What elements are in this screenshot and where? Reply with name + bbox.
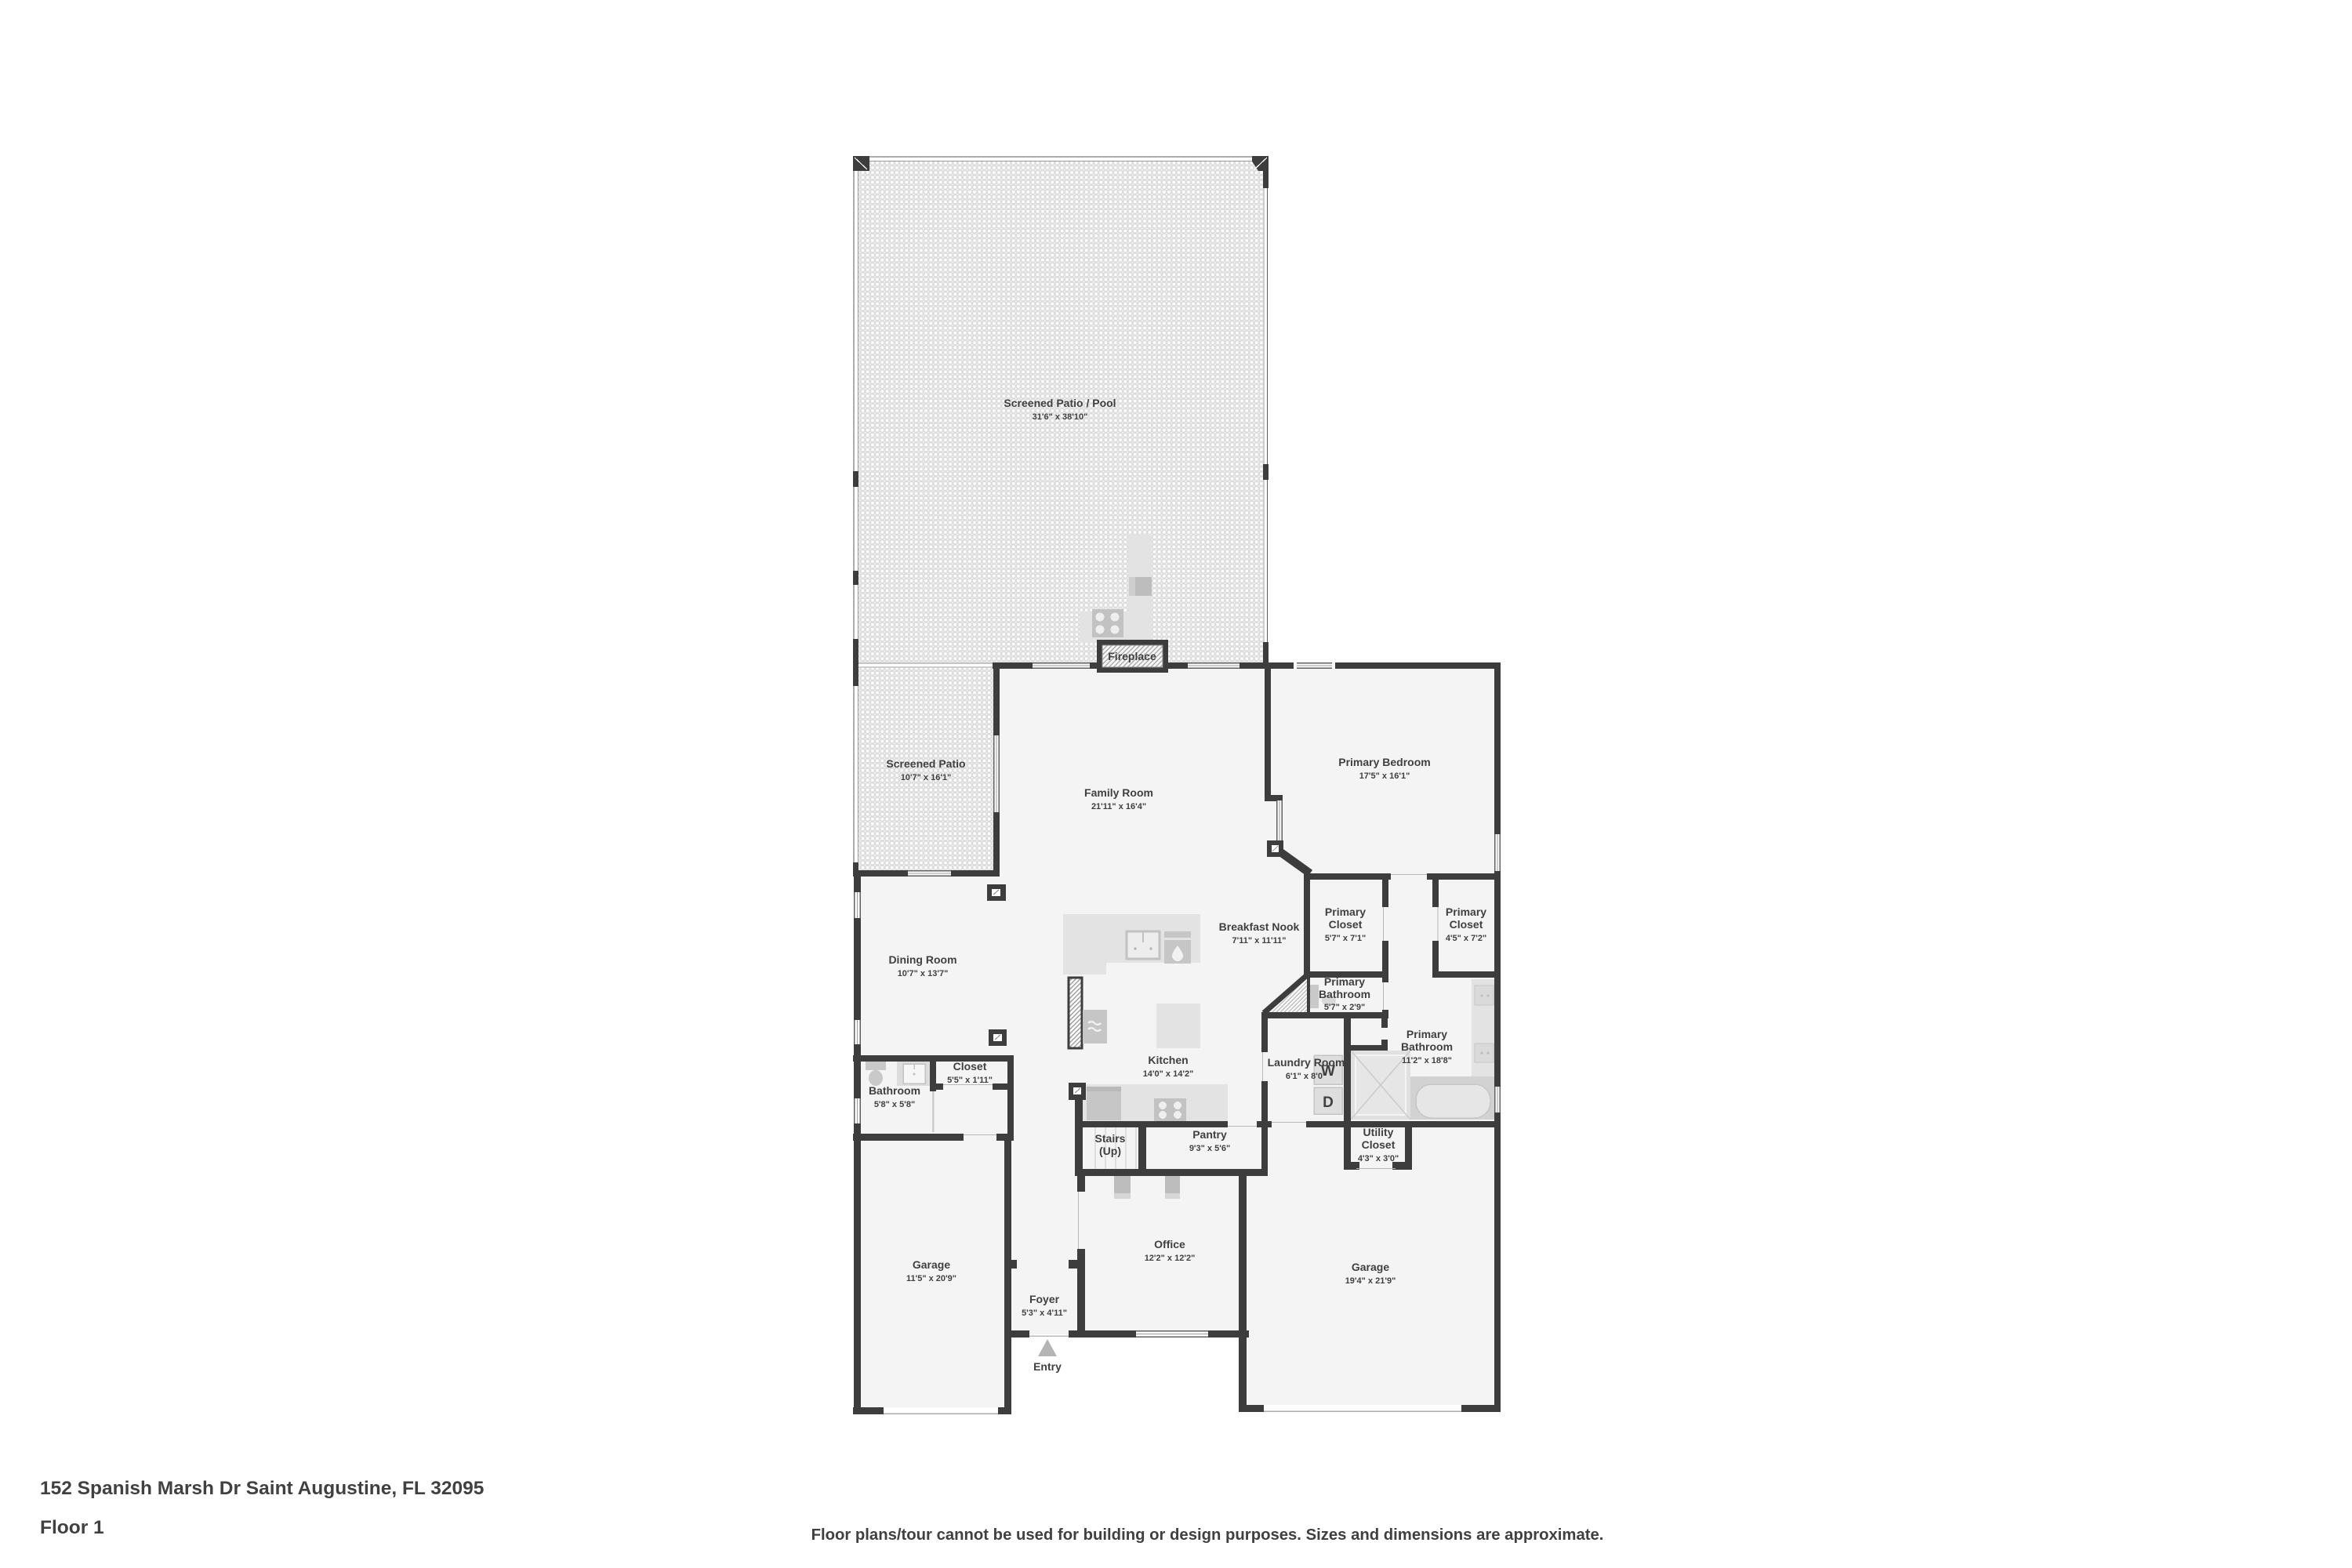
svg-text:Pantry: Pantry <box>1192 1128 1227 1141</box>
svg-text:Kitchen: Kitchen <box>1148 1054 1188 1066</box>
svg-text:Closet: Closet <box>1450 918 1483 931</box>
svg-text:Bathroom: Bathroom <box>869 1084 920 1097</box>
svg-text:12'2" x 12'2": 12'2" x 12'2" <box>1145 1254 1196 1263</box>
svg-text:Fireplace: Fireplace <box>1108 650 1156 662</box>
svg-text:152 Spanish Marsh Dr Saint Aug: 152 Spanish Marsh Dr Saint Augustine, FL… <box>40 1478 484 1499</box>
svg-text:Floor 1: Floor 1 <box>40 1517 104 1538</box>
svg-text:5'3" x 4'11": 5'3" x 4'11" <box>1022 1308 1067 1318</box>
svg-text:7'11" x 11'11": 7'11" x 11'11" <box>1232 936 1287 946</box>
svg-text:Bathroom: Bathroom <box>1319 988 1370 1000</box>
svg-text:Bathroom: Bathroom <box>1401 1040 1453 1053</box>
svg-text:5'5" x 1'11": 5'5" x 1'11" <box>947 1076 993 1085</box>
svg-text:Screened Patio / Pool: Screened Patio / Pool <box>1004 397 1116 409</box>
svg-text:Foyer: Foyer <box>1029 1293 1060 1305</box>
svg-text:5'7" x 2'9": 5'7" x 2'9" <box>1324 1003 1365 1012</box>
svg-text:Utility: Utility <box>1363 1126 1394 1138</box>
svg-text:4'3" x 3'0": 4'3" x 3'0" <box>1358 1154 1399 1163</box>
svg-text:4'5" x 7'2": 4'5" x 7'2" <box>1446 934 1486 943</box>
svg-text:5'8" x 5'8": 5'8" x 5'8" <box>874 1100 915 1109</box>
svg-text:14'0" x 14'2": 14'0" x 14'2" <box>1143 1069 1194 1079</box>
svg-text:Closet: Closet <box>953 1060 987 1073</box>
svg-text:Primary: Primary <box>1324 975 1365 988</box>
svg-text:D: D <box>1323 1094 1334 1111</box>
svg-text:11'5" x 20'9": 11'5" x 20'9" <box>906 1274 956 1283</box>
svg-text:Garage: Garage <box>913 1258 950 1271</box>
svg-text:Stairs: Stairs <box>1095 1132 1126 1145</box>
svg-text:Family Room: Family Room <box>1084 786 1153 799</box>
svg-text:10'7" x 13'7": 10'7" x 13'7" <box>898 969 949 978</box>
svg-text:11'2" x 18'8": 11'2" x 18'8" <box>1402 1056 1452 1065</box>
svg-text:Dining Room: Dining Room <box>888 953 956 966</box>
svg-text:Breakfast Nook: Breakfast Nook <box>1219 920 1300 933</box>
svg-text:19'4" x 21'9": 19'4" x 21'9" <box>1345 1276 1396 1286</box>
svg-text:31'6" x 38'10": 31'6" x 38'10" <box>1033 412 1088 422</box>
svg-text:Entry: Entry <box>1033 1360 1062 1373</box>
svg-text:21'11" x 16'4": 21'11" x 16'4" <box>1091 802 1146 811</box>
svg-text:Closet: Closet <box>1362 1138 1396 1151</box>
svg-text:Closet: Closet <box>1329 918 1363 931</box>
svg-text:9'3" x 5'6": 9'3" x 5'6" <box>1189 1144 1230 1153</box>
svg-text:10'7" x 16'1": 10'7" x 16'1" <box>901 773 952 782</box>
svg-text:Screened Patio: Screened Patio <box>886 757 965 770</box>
svg-text:17'5" x 16'1": 17'5" x 16'1" <box>1359 771 1410 781</box>
svg-text:Office: Office <box>1154 1238 1185 1250</box>
svg-text:Primary Bedroom: Primary Bedroom <box>1338 756 1430 768</box>
svg-text:6'1" x 8'0": 6'1" x 8'0" <box>1286 1072 1327 1081</box>
svg-text:Garage: Garage <box>1352 1261 1389 1273</box>
svg-text:Laundry Room: Laundry Room <box>1268 1056 1345 1069</box>
svg-text:Floor plans/tour cannot be use: Floor plans/tour cannot be used for buil… <box>811 1526 1604 1544</box>
svg-text:5'7" x 7'1": 5'7" x 7'1" <box>1325 934 1366 943</box>
svg-text:(Up): (Up) <box>1099 1145 1121 1157</box>
svg-text:Primary: Primary <box>1446 906 1486 918</box>
svg-text:Primary: Primary <box>1406 1028 1447 1040</box>
svg-text:Primary: Primary <box>1325 906 1366 918</box>
